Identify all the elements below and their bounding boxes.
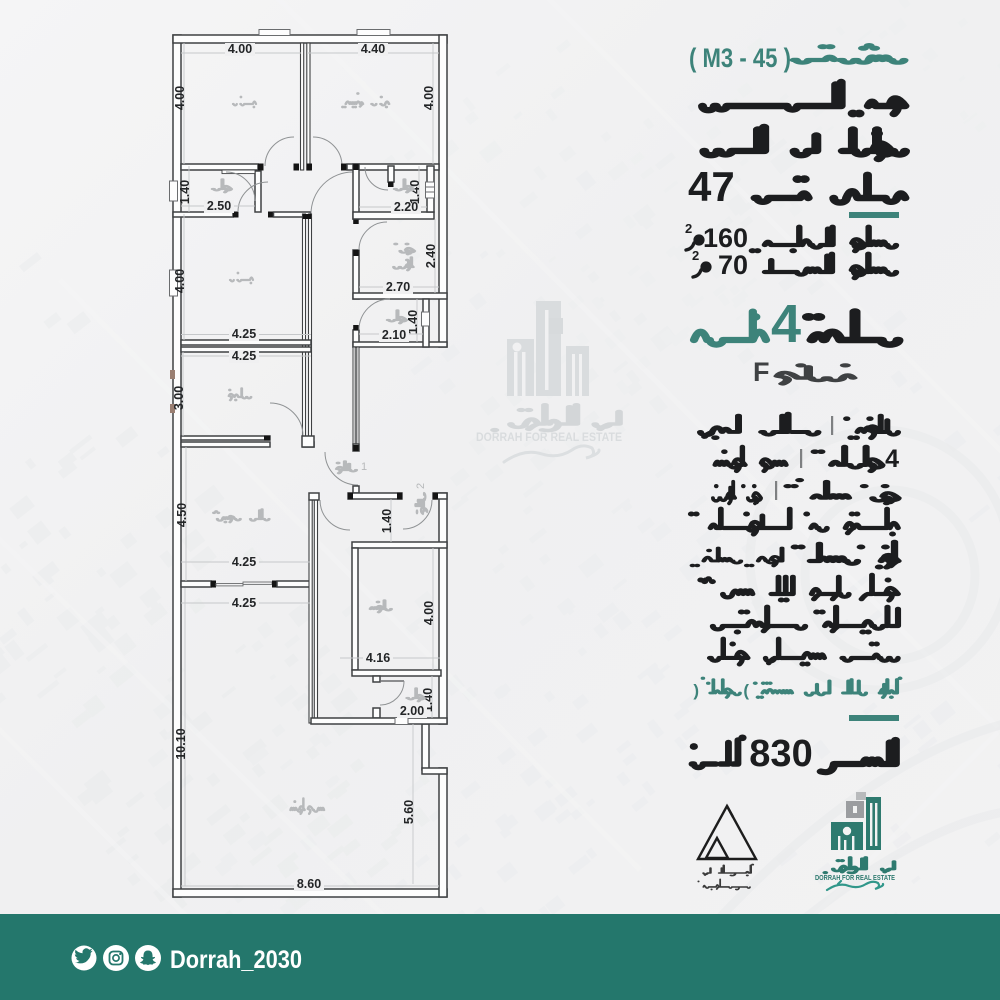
svg-text:830: 830: [749, 733, 812, 775]
svg-text:2: 2: [685, 221, 692, 236]
svg-text:4.40: 4.40: [361, 42, 385, 56]
svg-text:4.25: 4.25: [232, 327, 256, 341]
svg-text:4.00: 4.00: [228, 42, 252, 56]
svg-text:1.40: 1.40: [178, 180, 192, 204]
svg-text:4.25: 4.25: [232, 555, 256, 569]
svg-text:70: 70: [718, 250, 748, 280]
svg-text:4.00: 4.00: [173, 269, 187, 293]
svg-text:4.25: 4.25: [232, 349, 256, 363]
svg-text:4.00: 4.00: [422, 601, 436, 625]
svg-text:4: 4: [885, 445, 899, 473]
svg-text:DORRAH FOR REAL ESTATE: DORRAH FOR REAL ESTATE: [476, 432, 622, 444]
svg-text:4.25: 4.25: [232, 596, 256, 610]
svg-text:F: F: [753, 357, 770, 387]
svg-text:1.40: 1.40: [380, 509, 394, 533]
svg-text:4.00: 4.00: [173, 86, 187, 110]
svg-text:4: 4: [771, 294, 801, 354]
svg-text:2.70: 2.70: [386, 280, 410, 294]
svg-text:3.00: 3.00: [172, 386, 186, 410]
svg-text:4.50: 4.50: [175, 503, 189, 527]
svg-text:160: 160: [703, 223, 748, 253]
svg-text:2.10: 2.10: [382, 328, 406, 342]
svg-text:DORRAH FOR REAL ESTATE: DORRAH FOR REAL ESTATE: [815, 873, 895, 882]
svg-text:2: 2: [692, 248, 699, 263]
svg-text:2: 2: [415, 483, 427, 489]
svg-text:2.50: 2.50: [207, 199, 231, 213]
svg-text:4.16: 4.16: [366, 651, 390, 665]
svg-text:10.10: 10.10: [174, 728, 188, 759]
svg-text:Dorrah_2030: Dorrah_2030: [170, 946, 302, 974]
svg-text:(: (: [743, 681, 749, 700]
svg-text:8.60: 8.60: [297, 877, 321, 891]
svg-text:( M3 - 45 ): ( M3 - 45 ): [689, 43, 791, 73]
svg-text:): ): [693, 681, 699, 700]
svg-text:47: 47: [688, 163, 735, 210]
svg-text:1: 1: [361, 461, 367, 473]
svg-text:1.40: 1.40: [408, 180, 422, 204]
svg-text:2.00: 2.00: [400, 704, 424, 718]
svg-text:4.00: 4.00: [422, 86, 436, 110]
svg-text:5.60: 5.60: [402, 800, 416, 824]
svg-text:2.40: 2.40: [424, 244, 438, 268]
